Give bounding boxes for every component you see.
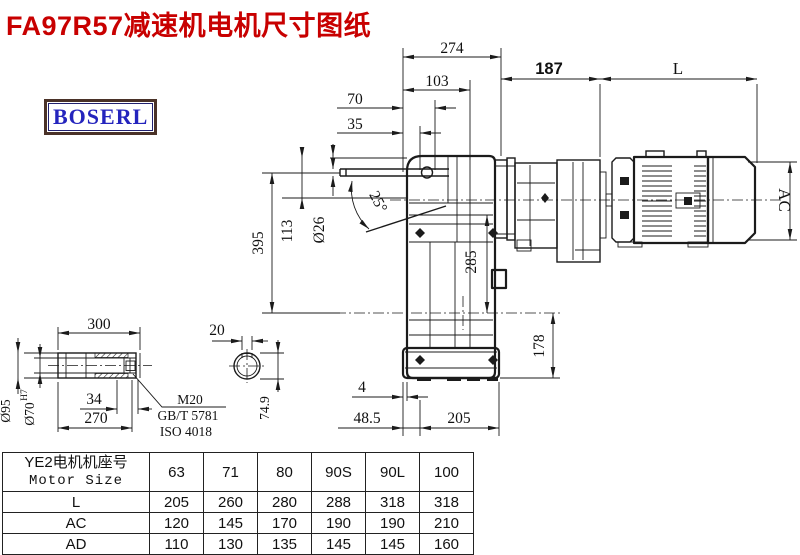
dim-20: 20 (209, 322, 225, 339)
dim-value-cell: 145 (366, 534, 420, 555)
dim-274: 274 (440, 40, 464, 57)
dim-187: 187 (535, 60, 563, 78)
motor-size-header-cell: YE2电机机座号 Motor Size (3, 453, 150, 492)
dim-value-cell: 145 (204, 513, 258, 534)
size-col-header: 90L (366, 453, 420, 492)
dim-value-cell: 288 (312, 492, 366, 513)
size-col-header: 71 (204, 453, 258, 492)
table-row-AC: AC 120 145 170 190 190 210 (3, 513, 474, 534)
dim-205: 205 (447, 410, 471, 427)
dim-113: 113 (279, 219, 296, 242)
dim-row-label: AC (3, 513, 150, 534)
motor (612, 151, 755, 247)
dim-25deg: 25° (365, 188, 390, 215)
dim-value-cell: 130 (204, 534, 258, 555)
dim-value-cell: 160 (420, 534, 474, 555)
dim-103: 103 (425, 73, 449, 90)
dim-value-cell: 205 (150, 492, 204, 513)
dim-value-cell: 260 (204, 492, 258, 513)
dim-AC: AC (775, 188, 794, 212)
size-col-header: 90S (312, 453, 366, 492)
dim-35: 35 (347, 116, 363, 133)
shaft-cross-section (212, 336, 284, 392)
dim-value-cell: 210 (420, 513, 474, 534)
dim-70: 70 (347, 91, 363, 108)
dim-74-9: 74.9 (257, 396, 272, 420)
dim-value-cell: 110 (150, 534, 204, 555)
dim-row-label: L (3, 492, 150, 513)
input-shaft-bar (340, 167, 449, 232)
dim-value-cell: 190 (312, 513, 366, 534)
dim-300: 300 (87, 316, 111, 333)
dim-48-5: 48.5 (353, 410, 380, 427)
dim-value-cell: 280 (258, 492, 312, 513)
dim-row-label: AD (3, 534, 150, 555)
centerlines (48, 200, 782, 383)
table-header-row: YE2电机机座号 Motor Size 63 71 80 90S 90L 100 (3, 453, 474, 492)
size-col-header: 100 (420, 453, 474, 492)
dim-270: 270 (84, 410, 108, 427)
dim-dia26: Ø26 (311, 216, 328, 243)
header-cn: YE2电机机座号 (3, 454, 149, 472)
dim-value-cell: 318 (420, 492, 474, 513)
dim-value-cell: 135 (258, 534, 312, 555)
dimension-drawing: 274 103 70 35 187 L AC 395 113 Ø26 25° 2… (0, 0, 800, 452)
dim-178: 178 (531, 334, 548, 358)
r57-unit (495, 158, 612, 262)
dim-dia70-tolerance: H7 (20, 389, 30, 401)
dimension-labels: 274 103 70 35 187 L AC 395 113 Ø26 25° 2… (0, 40, 794, 439)
dim-dia95: Ø95 (0, 399, 13, 422)
label-iso-4018: ISO 4018 (160, 424, 212, 439)
motor-size-table: YE2电机机座号 Motor Size 63 71 80 90S 90L 100… (2, 452, 474, 555)
dim-value-cell: 170 (258, 513, 312, 534)
label-m20: M20 (177, 392, 203, 407)
table-row-L: L 205 260 280 288 318 318 (3, 492, 474, 513)
dim-34: 34 (86, 391, 102, 408)
dim-value-cell: 145 (312, 534, 366, 555)
table-row-AD: AD 110 130 135 145 145 160 (3, 534, 474, 555)
dim-285: 285 (463, 250, 480, 274)
dim-value-cell: 318 (366, 492, 420, 513)
page: FA97R57减速机电机尺寸图纸 BOSERL (0, 0, 800, 555)
header-en: Motor Size (3, 472, 149, 490)
dim-L: L (673, 59, 683, 78)
dim-dia70: Ø70 (22, 402, 37, 425)
size-col-header: 80 (258, 453, 312, 492)
dim-395: 395 (250, 231, 267, 255)
dim-value-cell: 190 (366, 513, 420, 534)
size-col-header: 63 (150, 453, 204, 492)
gearbox-front-view (403, 156, 506, 381)
dim-4: 4 (358, 379, 366, 396)
dim-value-cell: 120 (150, 513, 204, 534)
label-gbt-5781: GB/T 5781 (158, 408, 219, 423)
